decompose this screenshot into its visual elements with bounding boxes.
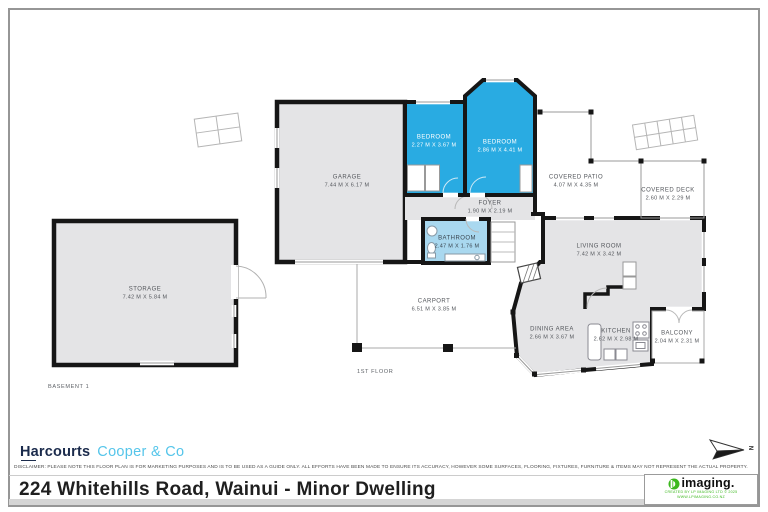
room-label-garage: GARAGE 7.44 M X 6.17 M (325, 174, 370, 188)
room-label-living-room: LIVING ROOM 7.42 M X 3.42 M (577, 243, 622, 257)
agency-brand-logo: HarcourtsCooper & Co (20, 443, 184, 461)
vendor-credit-line-2: WWW.LPIMAGING.CO.NZ (677, 495, 725, 500)
vendor-logo-row: imaging. (668, 476, 735, 490)
room-label-carport: CARPORT 6.51 M X 3.85 M (412, 298, 457, 312)
brand-secondary-text: Cooper & Co (97, 444, 184, 460)
brand-primary-text: Harcourts (20, 444, 90, 460)
vendor-name-text: imaging. (682, 476, 735, 490)
bedroom-2-shape (465, 78, 535, 198)
north-compass: N (704, 436, 758, 464)
room-label-covered-deck: COVERED DECK 2.60 M X 2.29 M (641, 187, 694, 201)
room-label-bedroom-2: BEDROOM 2.86 M X 4.41 M (478, 139, 523, 153)
covered-patio-shape (540, 112, 704, 218)
bedroom-1-shape (405, 100, 465, 198)
room-label-bathroom: BATHROOM 2.47 M X 1.76 M (435, 235, 480, 249)
room-label-storage: STORAGE 7.42 M X 5.84 M (123, 286, 168, 300)
floor-plan-page: STORAGE 7.42 M X 5.84 M GARAGE 7.44 M X … (0, 0, 768, 512)
floor-label-basement: BASEMENT 1 (48, 384, 89, 390)
room-label-foyer: FOYER 1.90 M X 2.19 M (468, 200, 513, 214)
pergola-grid (633, 115, 698, 149)
room-label-bedroom-1: BEDROOM 2.27 M X 3.67 M (412, 134, 457, 148)
entry-steps-shape (491, 222, 515, 262)
room-label-covered-patio: COVERED PATIO 4.07 M X 4.35 M (549, 174, 603, 188)
room-label-balcony: BALCONY 2.04 M X 2.31 M (655, 330, 700, 344)
skylight-grid (194, 113, 241, 147)
compass-north-label: N (747, 446, 753, 450)
room-label-kitchen: KITCHEN 2.62 M X 2.98 M (594, 328, 639, 342)
floor-plan-drawing (0, 0, 768, 512)
floor-label-first-floor: 1ST FLOOR (357, 369, 393, 375)
property-address-title: 224 Whitehills Road, Wainui - Minor Dwel… (19, 479, 436, 501)
brand-underline (21, 460, 36, 462)
vendor-logo-box: imaging. CREATED BY LP IMAGING LTD © 202… (644, 474, 758, 505)
room-label-dining-area: DINING AREA 2.66 M X 3.67 M (530, 326, 575, 340)
lp-imaging-logo-icon (668, 477, 680, 489)
disclaimer-text: DISCLAIMER: PLEASE NOTE THIS FLOOR PLAN … (14, 465, 748, 470)
